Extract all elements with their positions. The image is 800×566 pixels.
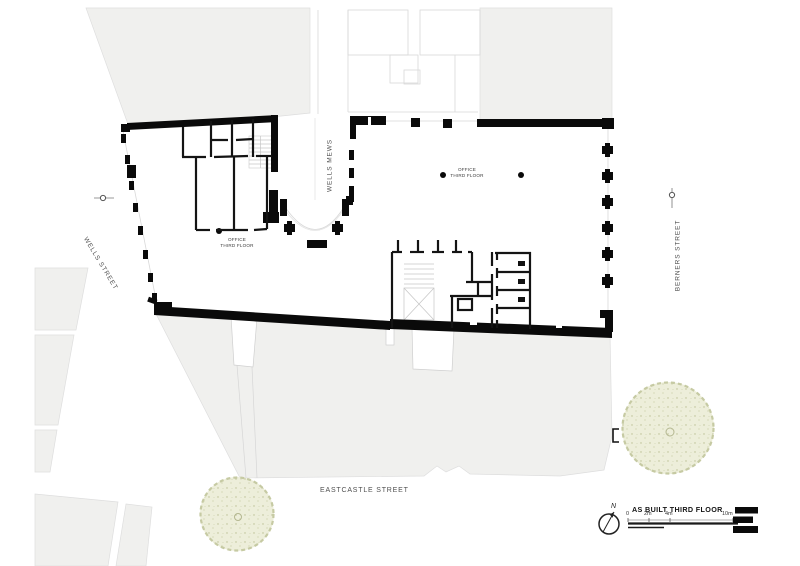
- scale-label-10m: 10m: [722, 511, 733, 517]
- scale-label-0: 0: [626, 511, 629, 517]
- room-label-line: THIRD FLOOR: [444, 173, 490, 179]
- fixtures: [518, 261, 525, 302]
- scale-bar: [628, 518, 738, 528]
- partition-walls: [182, 119, 531, 329]
- context-buildings: [35, 8, 612, 566]
- lamp-icon: [94, 195, 114, 200]
- north-arrow-icon: [599, 512, 619, 534]
- lift-icon: [404, 264, 434, 320]
- tree-icon: [200, 477, 274, 551]
- lamp-icon: [669, 188, 674, 208]
- scale-label-2m: 2m: [644, 511, 652, 517]
- logo-mark: [733, 507, 758, 533]
- floor-plan-sheet: WELLS STREET WELLS MEWS BERNERS STREET E…: [0, 0, 800, 566]
- room-label-office-west: OFFICE THIRD FLOOR: [214, 237, 260, 248]
- scale-label-4m: 4m: [665, 511, 673, 517]
- north-label: N: [611, 503, 616, 510]
- room-label-line: THIRD FLOOR: [214, 243, 260, 249]
- south-building-mass: [155, 312, 612, 478]
- street-label-wells-mews: WELLS MEWS: [327, 136, 334, 196]
- column-dot: [518, 172, 524, 178]
- street-label-eastcastle-street: EASTCASTLE STREET: [320, 487, 409, 494]
- room-label-office-east: OFFICE THIRD FLOOR: [444, 167, 490, 178]
- survey-mark-icon: [613, 429, 619, 442]
- street-label-berners-street: BERNERS STREET: [675, 216, 682, 296]
- tree-icon: [622, 382, 714, 474]
